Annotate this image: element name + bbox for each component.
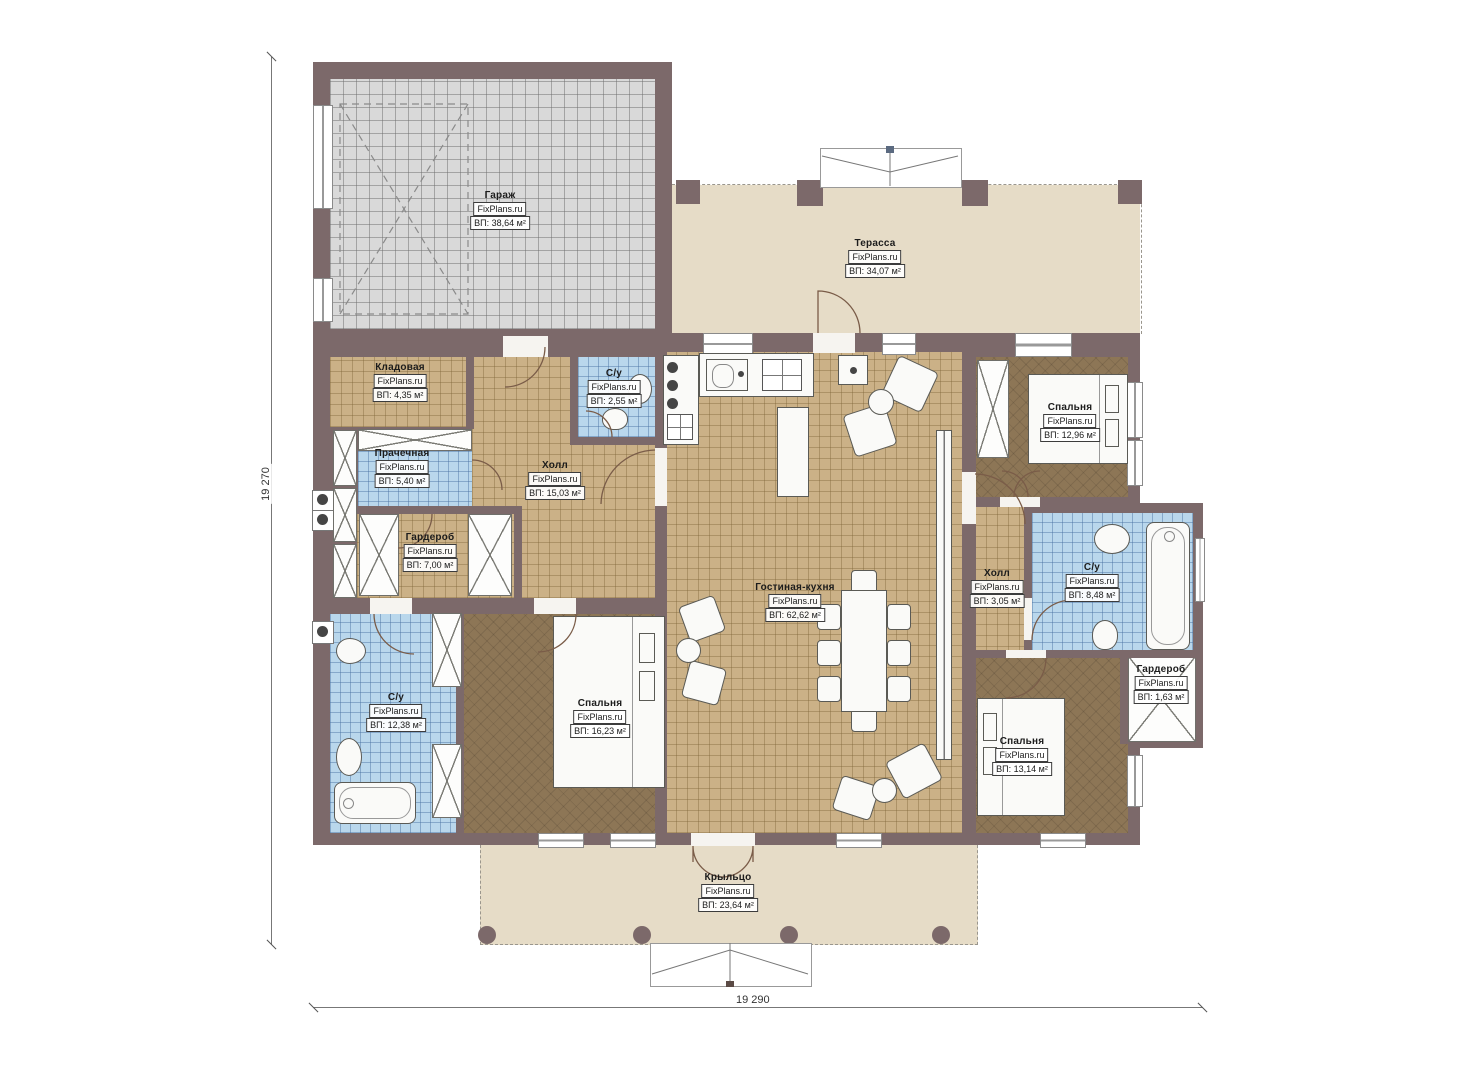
porch-stairs — [650, 943, 812, 987]
stove-burner — [667, 398, 678, 409]
room-label-bedroom-left: Спальня FixPlans.ru ВП: 16,23 м² — [570, 698, 630, 738]
room-label-porch: Крыльцо FixPlans.ru ВП: 23,64 м² — [698, 872, 758, 912]
room-area: ВП: 12,96 м² — [1040, 428, 1100, 442]
wardrobe-cabinet — [359, 514, 399, 596]
room-label-pantry: Кладовая FixPlans.ru ВП: 4,35 м² — [373, 362, 428, 402]
door-opening — [534, 598, 576, 614]
closet — [333, 488, 357, 542]
door-opening — [1006, 650, 1046, 658]
room-area: ВП: 1,63 м² — [1134, 690, 1189, 704]
room-name: Холл — [542, 460, 568, 471]
room-name: Гостиная-кухня — [755, 582, 834, 593]
porch-column — [478, 926, 496, 944]
room-label-living-kitchen: Гостиная-кухня FixPlans.ru ВП: 62,62 м² — [755, 582, 834, 622]
garage-door — [313, 105, 333, 209]
door-opening — [655, 448, 667, 506]
window — [610, 833, 656, 848]
kitchen-island — [777, 407, 809, 497]
window — [1127, 755, 1143, 807]
window — [1127, 382, 1143, 438]
kitchen-sink — [706, 359, 748, 391]
window — [1040, 833, 1086, 848]
room-name: Крыльцо — [705, 872, 752, 883]
room-area: ВП: 13,14 м² — [992, 762, 1052, 776]
room-brand: FixPlans.ru — [373, 374, 426, 388]
room-label-wc-right: С/у FixPlans.ru ВП: 8,48 м² — [1065, 562, 1120, 602]
chair — [817, 676, 841, 702]
toilet — [602, 408, 628, 430]
room-label-hall-right: Холл FixPlans.ru ВП: 3,05 м² — [970, 568, 1025, 608]
room-label-garage: Гараж FixPlans.ru ВП: 38,64 м² — [470, 190, 530, 230]
partition — [330, 506, 522, 514]
toilet — [1092, 620, 1118, 650]
bathtub — [1146, 522, 1190, 650]
room-brand: FixPlans.ru — [1043, 414, 1096, 428]
window — [703, 333, 753, 355]
stove-icon — [762, 359, 802, 391]
garage-house-opening — [503, 336, 548, 357]
room-brand: FixPlans.ru — [587, 380, 640, 394]
door-opening — [962, 472, 976, 524]
room-area: ВП: 7,00 м² — [403, 558, 458, 572]
room-area: ВП: 4,35 м² — [373, 388, 428, 402]
room-name: Гараж — [485, 190, 516, 201]
room-area: ВП: 38,64 м² — [470, 216, 530, 230]
room-name: С/у — [388, 692, 404, 703]
bathroom-cabinet — [432, 744, 462, 818]
vent-icon — [312, 621, 334, 644]
partition — [313, 598, 665, 614]
coffee-table — [868, 389, 894, 415]
partition — [975, 497, 1128, 507]
room-brand: FixPlans.ru — [573, 710, 626, 724]
room-label-bedroom-bottom-right: Спальня FixPlans.ru ВП: 13,14 м² — [992, 736, 1052, 776]
room-area: ВП: 16,23 м² — [570, 724, 630, 738]
terrace-column — [962, 180, 988, 206]
chair — [887, 604, 911, 630]
room-label-bedroom-top-right: Спальня FixPlans.ru ВП: 12,96 м² — [1040, 402, 1100, 442]
terrace-door-opening — [813, 333, 855, 353]
room-name: Прачечная — [375, 448, 430, 459]
room-brand: FixPlans.ru — [473, 202, 526, 216]
room-brand: FixPlans.ru — [848, 250, 901, 264]
terrace-column — [676, 180, 700, 204]
window — [1195, 538, 1205, 602]
door-opening — [370, 598, 412, 614]
door-opening — [1024, 598, 1032, 640]
room-area: ВП: 34,07 м² — [845, 264, 905, 278]
floor-plan-canvas: Гараж FixPlans.ru ВП: 38,64 м² Терасса F… — [0, 0, 1474, 1080]
wardrobe-cabinet — [468, 514, 512, 596]
room-brand: FixPlans.ru — [995, 748, 1048, 762]
bathroom-cabinet — [432, 613, 462, 687]
room-area: ВП: 3,05 м² — [970, 594, 1025, 608]
terrace-stairs — [820, 148, 962, 188]
stove-burner — [667, 362, 678, 373]
chair — [887, 640, 911, 666]
room-name: Гардероб — [406, 532, 455, 543]
dishwasher-icon — [838, 355, 868, 385]
door-opening — [1000, 497, 1040, 507]
room-area: ВП: 5,40 м² — [375, 474, 430, 488]
room-name: С/у — [606, 368, 622, 379]
room-brand: FixPlans.ru — [1134, 676, 1187, 690]
sink — [1094, 524, 1130, 554]
window — [882, 333, 916, 355]
bathtub — [334, 782, 416, 824]
dimension-label-left: 19 270 — [260, 464, 272, 504]
window — [1015, 333, 1072, 357]
washer-icon — [667, 414, 693, 440]
sink — [336, 738, 362, 776]
stove-burner — [667, 380, 678, 391]
chair — [817, 640, 841, 666]
room-brand: FixPlans.ru — [768, 594, 821, 608]
room-name: Спальня — [1048, 402, 1093, 413]
window — [836, 833, 882, 848]
room-label-wardrobe-left: Гардероб FixPlans.ru ВП: 7,00 м² — [403, 532, 458, 572]
room-brand: FixPlans.ru — [701, 884, 754, 898]
chair — [887, 676, 911, 702]
partition — [570, 357, 578, 441]
wardrobe-cabinet — [977, 360, 1009, 458]
room-area: ВП: 62,62 м² — [765, 608, 825, 622]
room-name: Терасса — [854, 238, 895, 249]
closet — [333, 544, 357, 598]
room-area: ВП: 2,55 м² — [587, 394, 642, 408]
room-brand: FixPlans.ru — [369, 704, 422, 718]
room-label-hall-main: Холл FixPlans.ru ВП: 15,03 м² — [525, 460, 585, 500]
room-name: Гардероб — [1137, 664, 1186, 675]
coffee-table — [872, 778, 897, 803]
partition — [1120, 656, 1128, 744]
room-area: ВП: 8,48 м² — [1065, 588, 1120, 602]
room-area: ВП: 23,64 м² — [698, 898, 758, 912]
tv-console — [936, 430, 952, 760]
room-label-laundry: Прачечная FixPlans.ru ВП: 5,40 м² — [375, 448, 430, 488]
room-area: ВП: 15,03 м² — [525, 486, 585, 500]
room-name: Спальня — [1000, 736, 1045, 747]
window — [1127, 440, 1143, 486]
room-brand: FixPlans.ru — [1065, 574, 1118, 588]
partition — [570, 437, 663, 445]
window — [538, 833, 584, 848]
room-label-wardrobe-right: Гардероб FixPlans.ru ВП: 1,63 м² — [1134, 664, 1189, 704]
porch-column — [633, 926, 651, 944]
room-brand: FixPlans.ru — [403, 544, 456, 558]
garage-door — [313, 278, 333, 322]
room-area: ВП: 12,38 м² — [366, 718, 426, 732]
room-brand: FixPlans.ru — [528, 472, 581, 486]
room-label-wc-left: С/у FixPlans.ru ВП: 12,38 м² — [366, 692, 426, 732]
room-name: С/у — [1084, 562, 1100, 573]
room-label-terrace: Терасса FixPlans.ru ВП: 34,07 м² — [845, 238, 905, 278]
porch-column — [932, 926, 950, 944]
room-name: Кладовая — [375, 362, 425, 373]
closet — [333, 430, 357, 486]
terrace-column — [1118, 180, 1142, 204]
dimension-label-bottom: 19 290 — [733, 994, 773, 1006]
room-brand: FixPlans.ru — [375, 460, 428, 474]
entry-door-opening — [691, 833, 755, 846]
partition — [514, 512, 522, 598]
room-name: Холл — [984, 568, 1010, 579]
partition — [466, 357, 474, 429]
room-name: Спальня — [578, 698, 623, 709]
room-brand: FixPlans.ru — [970, 580, 1023, 594]
room-label-wc-top: С/у FixPlans.ru ВП: 2,55 м² — [587, 368, 642, 408]
vent-icon — [312, 490, 334, 511]
porch-column — [780, 926, 798, 944]
coffee-table — [676, 638, 701, 663]
dining-table — [841, 590, 887, 712]
terrace-boundary — [672, 184, 1142, 334]
vent-icon — [312, 510, 334, 531]
dimension-line-bottom — [313, 1007, 1203, 1008]
